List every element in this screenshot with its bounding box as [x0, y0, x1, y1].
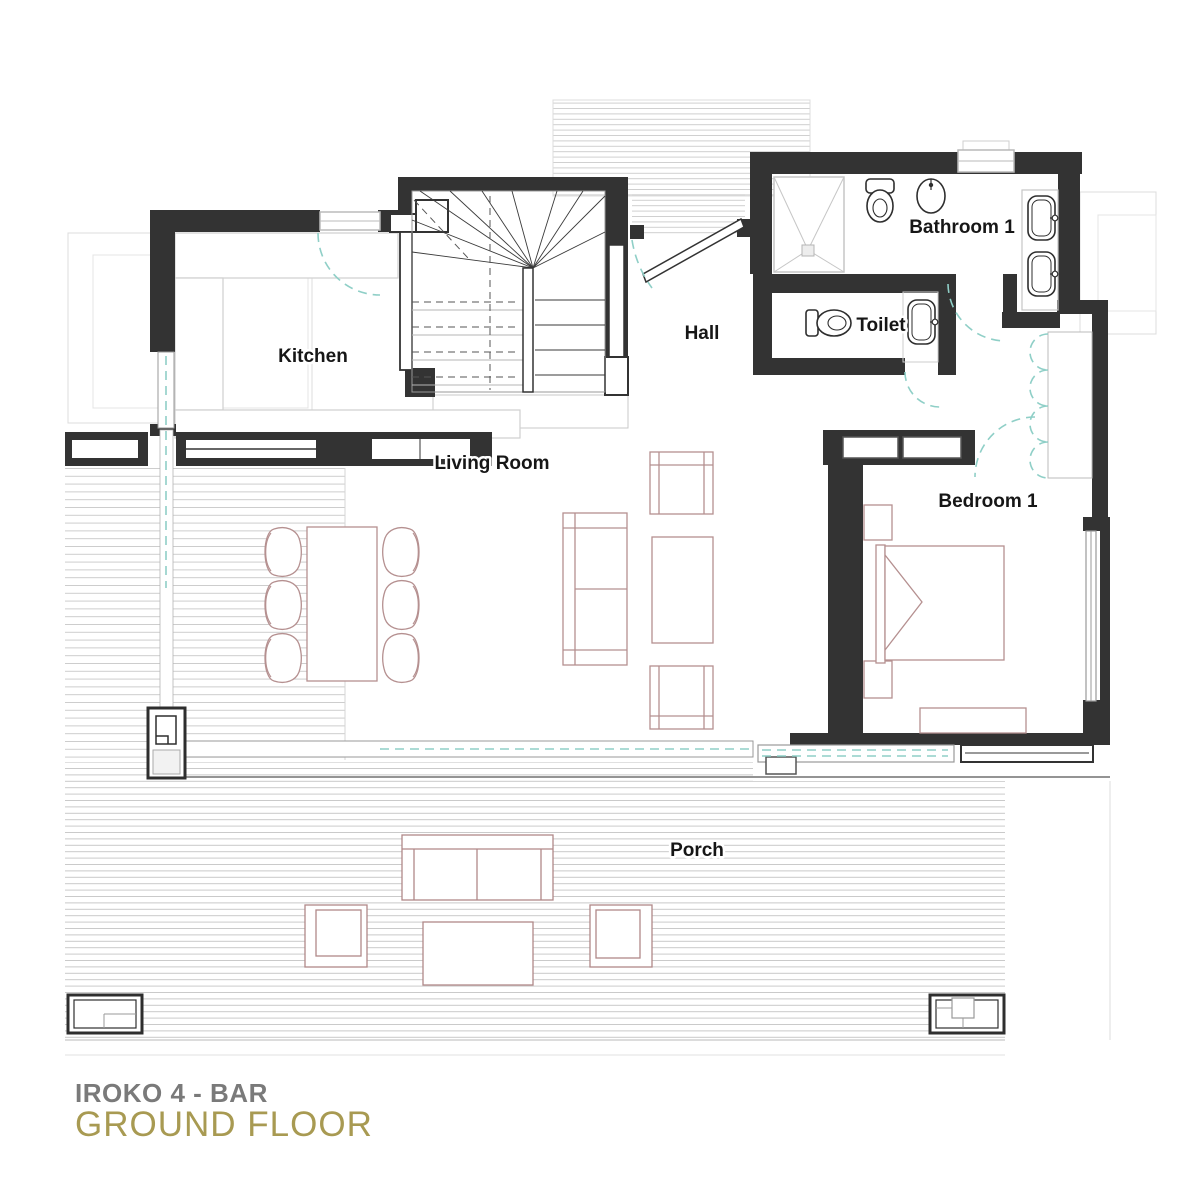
coffee-table [652, 537, 713, 643]
armchair [650, 452, 713, 514]
nightstand [864, 505, 892, 540]
porch-deck-left [65, 762, 753, 1040]
room-label-bedroom-1: Bedroom 1 [938, 491, 1038, 512]
stair-stringer [400, 232, 412, 370]
kitchen-counters [175, 233, 520, 438]
toilet-door-swing [905, 372, 940, 407]
bathroom-door-swing [948, 284, 1005, 341]
armchair [650, 666, 713, 729]
plan-subtitle: GROUND FLOOR [75, 1107, 373, 1143]
sink-icon [908, 300, 938, 344]
room-label-porch: Porch [670, 840, 724, 861]
bidet-icon [917, 179, 945, 213]
nightstand [864, 661, 892, 698]
planter-east-inner [1098, 215, 1156, 311]
title-block: IROKO 4 - BAR GROUND FLOOR [75, 1080, 373, 1143]
living-furniture [307, 452, 713, 729]
wc-toilet-icon [866, 179, 894, 222]
porch-post [68, 995, 142, 1033]
porch-sofa [402, 835, 553, 900]
wardrobe-strip [1048, 332, 1092, 478]
wc-toilet-icon [806, 310, 851, 336]
stair-center-rail [523, 268, 533, 392]
dining-table [307, 527, 377, 681]
room-label-living-room: Living Room [434, 453, 549, 474]
counter-top [175, 233, 398, 278]
porch-coffee-table [423, 922, 533, 985]
wardrobe-folding-doors [1030, 334, 1048, 478]
sofa [563, 513, 627, 665]
room-label-toilet: Toilet [856, 315, 906, 336]
porch-post [930, 995, 1004, 1033]
stair-wall-box [605, 357, 628, 395]
bed [876, 545, 1004, 663]
room-label-kitchen: Kitchen [278, 346, 348, 367]
left-deck [65, 468, 345, 762]
stair-wall-niche [609, 245, 624, 357]
bedroom-furniture [864, 505, 1026, 733]
counter-left [175, 278, 223, 410]
room-label-hall: Hall [685, 323, 720, 344]
plan-title: IROKO 4 - BAR [75, 1080, 373, 1107]
shower [774, 177, 844, 272]
porch-armchair [305, 905, 367, 967]
sink-icon [1028, 252, 1058, 296]
floorplan-sheet: Kitchen Living Room Hall Toilet Bathroom… [0, 0, 1200, 1200]
bedroom-door-swing [975, 417, 1035, 477]
fireplace-post [148, 708, 185, 778]
stair-corner-box-a [416, 200, 448, 232]
room-label-bathroom-1: Bathroom 1 [909, 217, 1015, 238]
porch-armchair [590, 905, 652, 967]
bedroom-bench [920, 708, 1026, 733]
sink-icon [1028, 196, 1058, 240]
floor-plan: Kitchen Living Room Hall Toilet Bathroom… [0, 0, 1200, 1200]
